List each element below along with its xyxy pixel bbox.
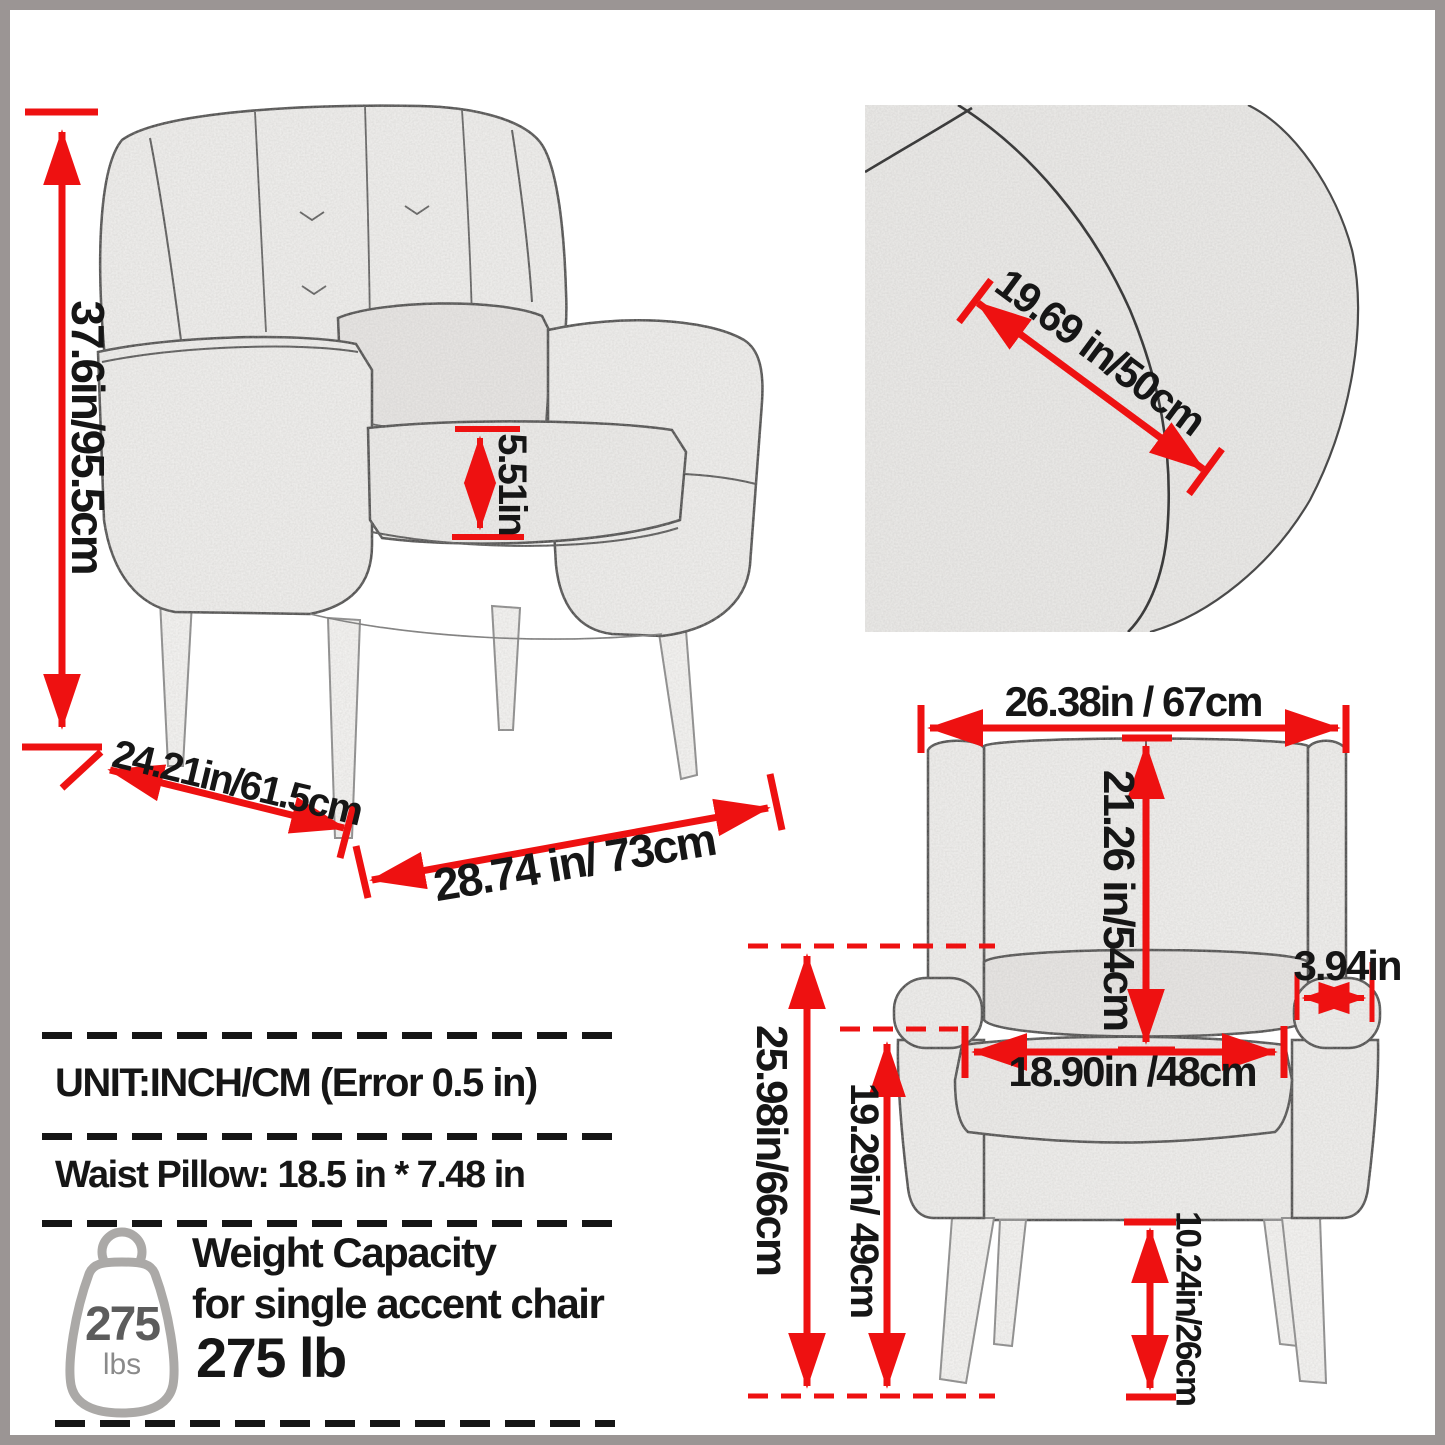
waist-pillow-note: Waist Pillow: 18.5 in * 7.48 in bbox=[55, 1156, 524, 1194]
dim-cushion-thickness-label: 5.51in bbox=[492, 433, 532, 534]
dashed-divider bbox=[42, 1032, 618, 1039]
dim-armrest-height-label: 25.98in/66cm bbox=[749, 1025, 793, 1275]
weight-icon-unit: lbs bbox=[103, 1350, 141, 1380]
dim-height-label: 37.6in/95.5cm bbox=[65, 300, 111, 573]
unit-note: UNIT:INCH/CM (Error 0.5 in) bbox=[55, 1063, 537, 1103]
dashed-divider bbox=[42, 1133, 618, 1140]
dim-overall-width-label: 26.38in / 67cm bbox=[1005, 681, 1262, 723]
weight-capacity-line3: 275 lb bbox=[196, 1330, 346, 1386]
product-dimension-diagram: 37.6in/95.5cm 5.51in 24.21in/61.5cm 28.7… bbox=[0, 0, 1445, 1445]
weight-capacity-line2: for single accent chair bbox=[192, 1283, 603, 1325]
dim-backrest-height-label: 21.26 in/54cm bbox=[1096, 770, 1140, 1030]
dim-armrest-width-label: 3.94in bbox=[1293, 945, 1400, 987]
dim-seat-height-label: 19.29in/ 49cm bbox=[844, 1083, 884, 1317]
weight-icon-value: 275 bbox=[85, 1301, 159, 1349]
dim-seat-width-label: 18.90in /48cm bbox=[1008, 1051, 1255, 1093]
weight-capacity-line1: Weight Capacity bbox=[192, 1232, 495, 1274]
perspective-chair-drawing bbox=[98, 106, 762, 838]
dim-leg-height-label: 10.24in/26cm bbox=[1171, 1211, 1206, 1405]
